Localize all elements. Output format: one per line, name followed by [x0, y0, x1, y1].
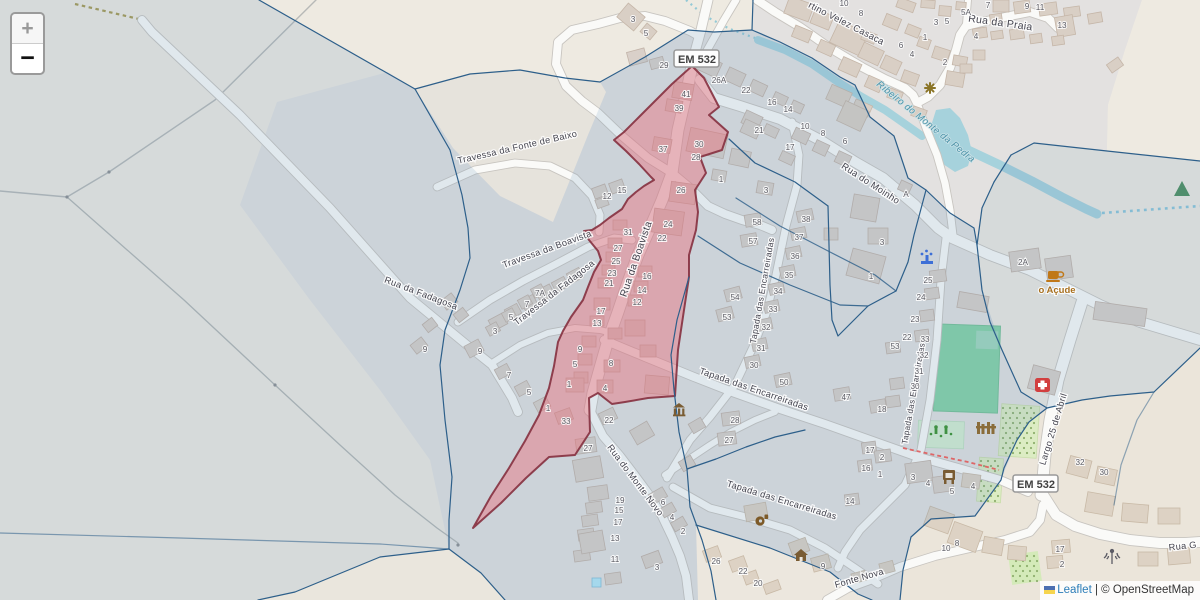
svg-text:7A: 7A: [535, 289, 546, 298]
svg-text:3: 3: [493, 327, 498, 336]
svg-text:3: 3: [764, 186, 769, 195]
svg-text:24: 24: [663, 220, 673, 229]
svg-text:2: 2: [681, 527, 686, 536]
svg-text:28: 28: [691, 153, 701, 162]
svg-text:1: 1: [567, 380, 572, 389]
svg-text:17: 17: [1055, 545, 1065, 554]
svg-text:14: 14: [845, 497, 855, 506]
svg-text:22: 22: [657, 234, 667, 243]
svg-text:7: 7: [986, 1, 991, 10]
svg-text:13: 13: [610, 534, 620, 543]
svg-text:33: 33: [561, 417, 571, 426]
svg-text:27: 27: [583, 444, 593, 453]
svg-text:o Açude: o Açude: [1038, 285, 1075, 296]
svg-text:22: 22: [738, 567, 748, 576]
svg-text:50: 50: [779, 378, 789, 387]
svg-text:5: 5: [509, 313, 514, 322]
svg-text:18: 18: [877, 405, 887, 414]
svg-text:5A: 5A: [961, 8, 972, 17]
svg-text:24: 24: [916, 293, 926, 302]
svg-text:3: 3: [655, 563, 660, 572]
svg-text:22: 22: [902, 333, 912, 342]
svg-text:5: 5: [573, 360, 578, 369]
svg-text:25: 25: [611, 257, 621, 266]
svg-text:4: 4: [670, 513, 675, 522]
svg-text:8: 8: [859, 9, 864, 18]
svg-text:15: 15: [617, 186, 627, 195]
svg-text:7: 7: [525, 300, 530, 309]
svg-text:36: 36: [790, 252, 800, 261]
svg-text:10: 10: [839, 0, 849, 8]
svg-text:57: 57: [748, 237, 758, 246]
svg-text:17: 17: [613, 518, 623, 527]
svg-text:14: 14: [783, 105, 793, 114]
svg-text:15: 15: [614, 506, 624, 515]
svg-text:1: 1: [869, 272, 874, 281]
svg-text:EM 532: EM 532: [1017, 479, 1055, 491]
svg-text:2A: 2A: [1018, 258, 1029, 267]
svg-text:9: 9: [578, 345, 583, 354]
svg-text:9: 9: [1025, 2, 1030, 11]
svg-text:31: 31: [914, 367, 924, 376]
svg-text:34: 34: [773, 287, 783, 296]
svg-text:8: 8: [955, 539, 960, 548]
svg-text:37: 37: [794, 233, 804, 242]
svg-text:23: 23: [910, 315, 920, 324]
svg-text:9: 9: [821, 562, 826, 571]
svg-text:4: 4: [926, 479, 931, 488]
svg-text:3: 3: [880, 238, 885, 247]
svg-text:12: 12: [602, 192, 612, 201]
svg-text:26A: 26A: [712, 76, 727, 85]
svg-text:16: 16: [642, 272, 652, 281]
svg-text:12: 12: [632, 298, 642, 307]
svg-text:22: 22: [604, 416, 614, 425]
svg-text:10: 10: [941, 544, 951, 553]
svg-text:4: 4: [910, 50, 915, 59]
svg-text:16: 16: [861, 464, 871, 473]
svg-text:28: 28: [730, 416, 740, 425]
svg-text:33: 33: [920, 335, 930, 344]
svg-text:26: 26: [711, 557, 721, 566]
svg-text:7: 7: [507, 371, 512, 380]
svg-text:4: 4: [971, 482, 976, 491]
svg-text:9: 9: [478, 347, 483, 356]
svg-text:20: 20: [753, 579, 763, 588]
svg-text:38: 38: [801, 215, 811, 224]
svg-text:41: 41: [681, 90, 691, 99]
svg-text:47: 47: [841, 393, 851, 402]
svg-text:32: 32: [761, 323, 771, 332]
svg-text:27: 27: [724, 436, 734, 445]
svg-text:54: 54: [730, 293, 740, 302]
svg-text:30: 30: [694, 140, 704, 149]
svg-text:11: 11: [611, 555, 620, 564]
svg-text:53: 53: [722, 313, 732, 322]
svg-text:16: 16: [767, 98, 777, 107]
svg-text:3: 3: [934, 18, 939, 27]
svg-text:30: 30: [749, 361, 759, 370]
svg-text:8: 8: [609, 359, 614, 368]
svg-text:35: 35: [784, 271, 794, 280]
svg-text:32: 32: [1075, 458, 1085, 467]
svg-text:2: 2: [880, 453, 885, 462]
svg-text:2: 2: [1060, 560, 1065, 569]
svg-text:17: 17: [596, 307, 606, 316]
svg-text:1: 1: [546, 404, 551, 413]
svg-text:1: 1: [878, 470, 883, 479]
svg-text:6: 6: [843, 137, 848, 146]
svg-text:58: 58: [752, 218, 762, 227]
svg-text:26: 26: [676, 186, 686, 195]
svg-text:13: 13: [1057, 21, 1067, 30]
svg-text:8: 8: [821, 129, 826, 138]
svg-text:17: 17: [785, 143, 795, 152]
svg-text:30: 30: [1099, 468, 1109, 477]
svg-text:21: 21: [754, 126, 764, 135]
svg-text:EM 532: EM 532: [678, 54, 716, 66]
svg-text:6: 6: [661, 498, 666, 507]
svg-text:19: 19: [615, 496, 625, 505]
svg-text:33: 33: [768, 305, 778, 314]
svg-text:A: A: [903, 190, 909, 199]
svg-text:37: 37: [658, 145, 668, 154]
svg-text:3: 3: [631, 15, 636, 24]
svg-text:23: 23: [607, 269, 617, 278]
svg-text:13: 13: [592, 319, 602, 328]
svg-text:6: 6: [899, 41, 904, 50]
svg-text:21: 21: [604, 279, 614, 288]
svg-text:14: 14: [637, 286, 647, 295]
svg-text:27: 27: [613, 244, 623, 253]
svg-text:53: 53: [890, 342, 900, 351]
svg-text:22: 22: [741, 86, 751, 95]
svg-text:5: 5: [527, 388, 532, 397]
svg-text:4: 4: [603, 384, 608, 393]
svg-text:4: 4: [974, 32, 979, 41]
svg-text:11: 11: [1036, 3, 1045, 12]
svg-text:10: 10: [800, 122, 810, 131]
svg-text:5: 5: [945, 17, 950, 26]
svg-text:2: 2: [943, 58, 948, 67]
svg-text:31: 31: [756, 344, 766, 353]
svg-text:9: 9: [423, 345, 428, 354]
svg-text:39: 39: [674, 104, 684, 113]
svg-text:31: 31: [623, 228, 633, 237]
svg-text:5: 5: [950, 487, 955, 496]
svg-text:32: 32: [919, 351, 929, 360]
svg-text:25: 25: [923, 276, 933, 285]
svg-text:1: 1: [719, 175, 724, 184]
svg-text:29: 29: [659, 61, 669, 70]
svg-text:30: 30: [910, 382, 920, 391]
svg-text:5: 5: [644, 29, 649, 38]
svg-text:1: 1: [923, 33, 928, 42]
svg-text:17: 17: [865, 446, 875, 455]
svg-text:3: 3: [911, 473, 916, 482]
